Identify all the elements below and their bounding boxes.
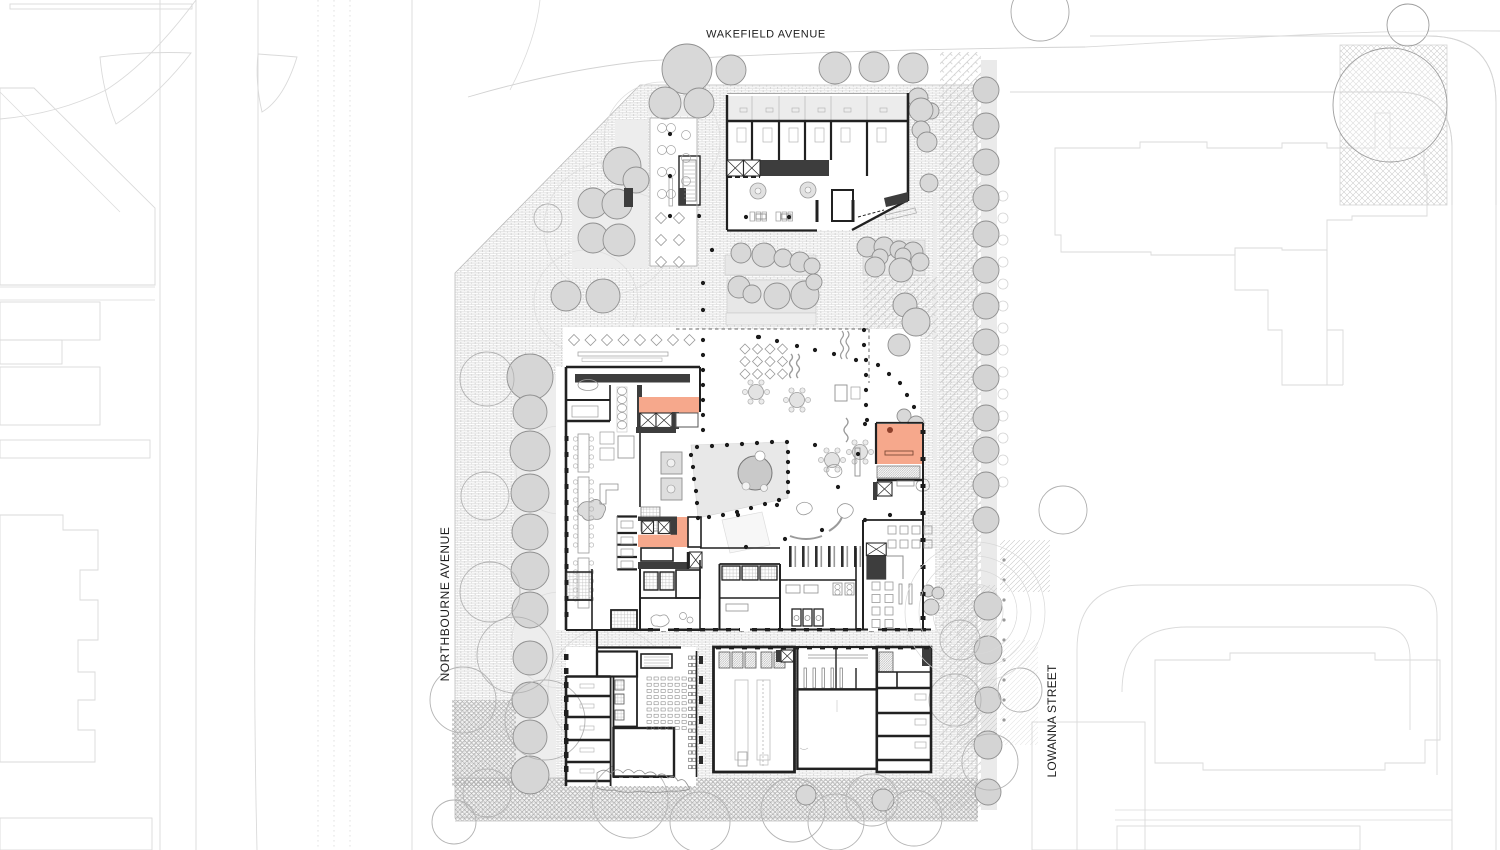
svg-text:NORTHBOURNE AVENUE: NORTHBOURNE AVENUE <box>438 527 452 682</box>
svg-text:WAKEFIELD AVENUE: WAKEFIELD AVENUE <box>706 29 826 41</box>
svg-text:LOWANNA STREET: LOWANNA STREET <box>1045 664 1059 778</box>
